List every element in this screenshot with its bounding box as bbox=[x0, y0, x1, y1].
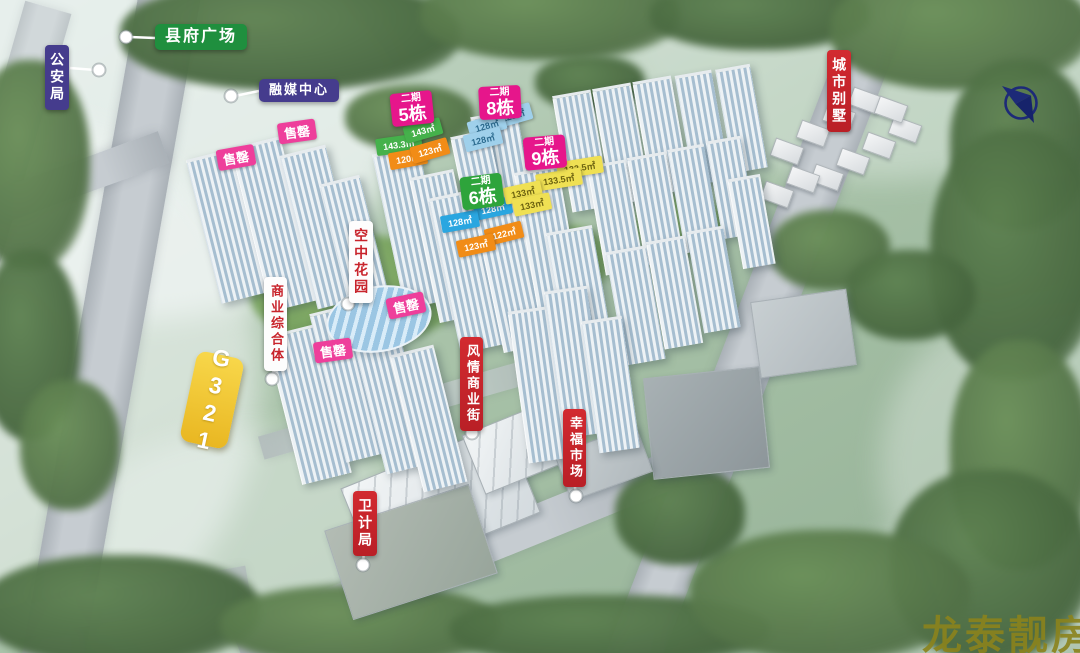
low-rise-building bbox=[750, 289, 857, 379]
aerial-masterplan-rendering: 县府广场公安局融媒中心空中花园商业综合体风情商业街幸福市场卫计局城市别墅 二期5… bbox=[0, 0, 1080, 653]
building-number-text: 8栋 bbox=[486, 98, 515, 118]
building-number-text: 9栋 bbox=[531, 147, 561, 168]
poi-label-health-bureau: 卫计局 bbox=[353, 491, 377, 556]
tree-cluster bbox=[0, 555, 260, 653]
building-number-label-phase2-building-5: 二期5栋 bbox=[389, 90, 434, 128]
poi-label-city-villa: 城市别墅 bbox=[827, 50, 851, 132]
building-number-text: 6栋 bbox=[468, 186, 498, 208]
poi-label-commercial-complex: 商业综合体 bbox=[264, 277, 287, 371]
building-number-label-phase2-building-8: 二期8栋 bbox=[478, 85, 522, 121]
tree-cluster bbox=[615, 465, 745, 565]
tree-cluster bbox=[20, 380, 120, 510]
poi-label-sky-garden: 空中花园 bbox=[349, 221, 373, 303]
low-rise-building bbox=[643, 366, 770, 480]
poi-label-featured-commercial-street: 风情商业街 bbox=[460, 337, 483, 431]
developer-watermark: 龙泰靓房 bbox=[922, 603, 1080, 653]
poi-label-happiness-market: 幸福市场 bbox=[563, 409, 586, 487]
poi-label-media-center: 融媒中心 bbox=[259, 79, 339, 102]
compass-logo bbox=[1000, 74, 1042, 133]
compass-icon bbox=[1000, 74, 1042, 128]
tree-cluster bbox=[845, 250, 975, 340]
building-number-label-phase2-building-6: 二期6栋 bbox=[459, 173, 505, 211]
poi-label-public-security-bureau: 公安局 bbox=[45, 45, 69, 110]
poi-label-county-plaza: 县府广场 bbox=[155, 24, 247, 50]
building-number-text: 5栋 bbox=[398, 103, 428, 125]
building-number-label-phase2-building-9: 二期9栋 bbox=[523, 134, 568, 171]
